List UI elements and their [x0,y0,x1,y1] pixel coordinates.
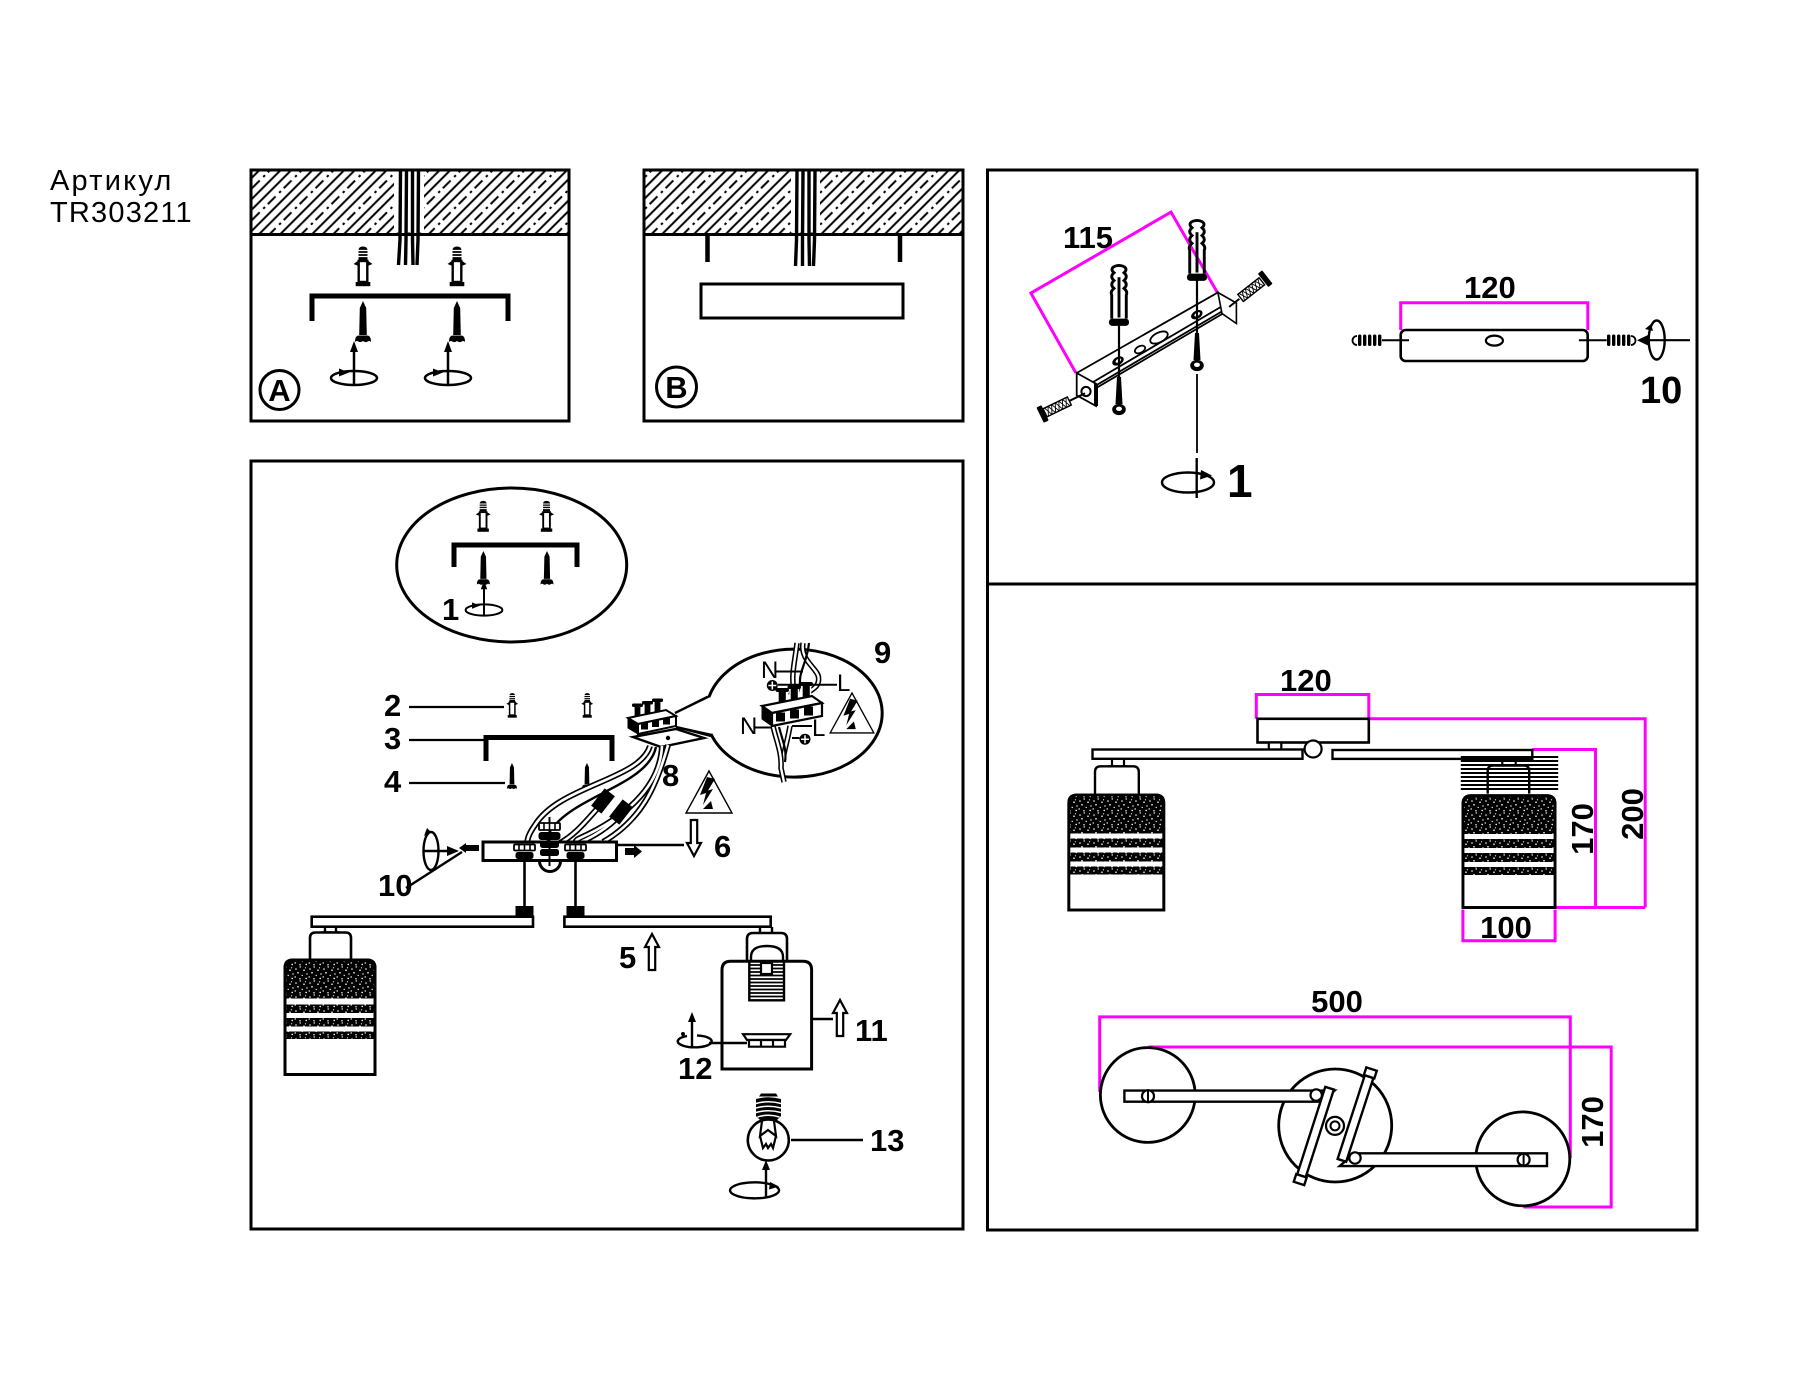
svg-text:13: 13 [870,1123,904,1158]
svg-text:2: 2 [384,688,401,723]
svg-text:9: 9 [874,635,891,670]
svg-text:120: 120 [1464,270,1516,305]
svg-text:6: 6 [714,829,731,864]
svg-text:L: L [837,670,850,697]
svg-text:170: 170 [1565,803,1600,855]
svg-text:10: 10 [378,868,412,903]
svg-text:A: A [268,373,290,408]
svg-text:100: 100 [1480,910,1532,945]
svg-text:L: L [812,715,825,742]
svg-text:B: B [665,370,687,405]
svg-text:TR303211: TR303211 [50,197,193,229]
svg-text:12: 12 [678,1051,712,1086]
svg-text:Артикул: Артикул [50,165,174,197]
svg-text:500: 500 [1311,984,1363,1019]
svg-text:10: 10 [1640,370,1682,412]
svg-text:200: 200 [1615,788,1650,840]
svg-text:170: 170 [1575,1096,1610,1148]
svg-text:4: 4 [384,764,402,799]
svg-text:1: 1 [442,592,459,627]
svg-text:5: 5 [619,940,636,975]
svg-text:120: 120 [1280,663,1332,698]
svg-text:1: 1 [1227,455,1253,507]
svg-text:3: 3 [384,721,401,756]
svg-text:11: 11 [855,1013,888,1048]
